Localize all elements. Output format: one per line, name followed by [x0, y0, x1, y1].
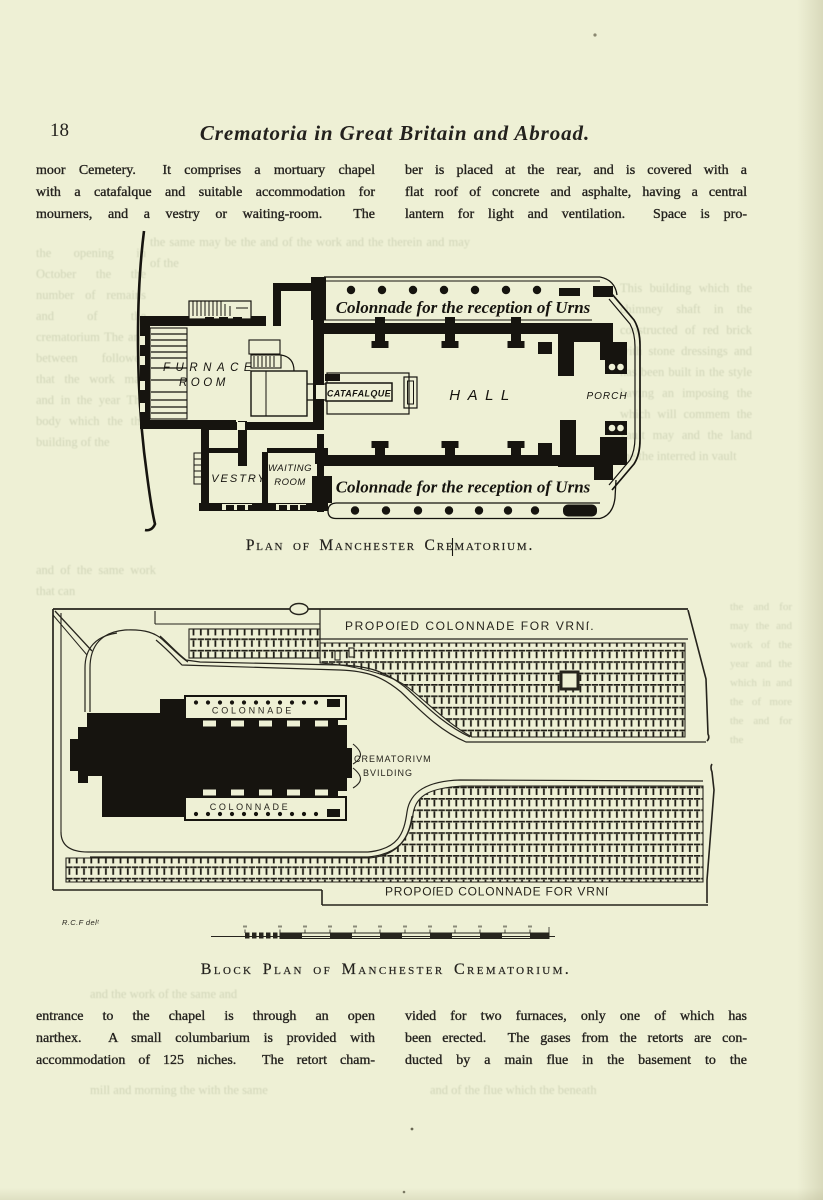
svg-text:WAITING: WAITING	[268, 463, 312, 474]
svg-text:FURNACE: FURNACE	[163, 362, 257, 374]
svg-text:Colonnade for the reception of: Colonnade for the reception of Urns	[336, 478, 591, 497]
svg-text:COLONNADE: COLONNADE	[210, 802, 290, 812]
svg-text:ROOM: ROOM	[179, 377, 229, 389]
svg-text:VESTRY: VESTRY	[211, 473, 267, 485]
svg-text:PROPOſED COLONNADE FOR VRNſ: PROPOſED COLONNADE FOR VRNſ	[385, 885, 609, 899]
svg-text:CREMATORIVM: CREMATORIVM	[354, 754, 432, 764]
svg-text:ROOM: ROOM	[274, 477, 306, 488]
svg-text:BVILDING: BVILDING	[363, 768, 413, 778]
svg-text:HALL: HALL	[449, 387, 517, 404]
svg-text:R.C.F delᵗ: R.C.F delᵗ	[62, 918, 99, 927]
svg-text:COLONNADE: COLONNADE	[212, 706, 294, 716]
svg-text:PROPOſED COLONNADE FOR VRNſ.: PROPOſED COLONNADE FOR VRNſ.	[345, 619, 595, 633]
svg-text:PORCH: PORCH	[586, 391, 627, 402]
svg-text:CATAFALQUE: CATAFALQUE	[327, 389, 392, 399]
svg-text:Colonnade for the reception of: Colonnade for the reception of Urns	[336, 298, 591, 317]
